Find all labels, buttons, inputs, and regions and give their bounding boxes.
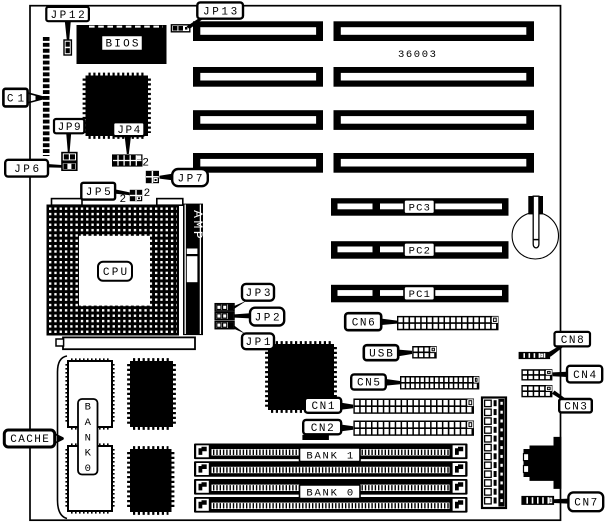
svg-text:CN5: CN5 xyxy=(357,378,382,390)
svg-text:JP6: JP6 xyxy=(14,164,42,176)
svg-text:CN6: CN6 xyxy=(352,317,377,329)
svg-text:CN8: CN8 xyxy=(561,335,586,347)
svg-text:2: 2 xyxy=(120,194,127,206)
svg-text:2: 2 xyxy=(142,158,149,170)
svg-text:BANK 1: BANK 1 xyxy=(306,450,355,462)
svg-text:JP4: JP4 xyxy=(117,125,142,137)
svg-text:K: K xyxy=(85,448,92,460)
svg-text:CACHE: CACHE xyxy=(10,434,50,446)
svg-text:CN7: CN7 xyxy=(574,498,599,510)
svg-text:AMP: AMP xyxy=(190,210,205,241)
svg-text:36003: 36003 xyxy=(398,49,438,61)
svg-text:JP9: JP9 xyxy=(58,122,83,134)
svg-text:PC3: PC3 xyxy=(409,202,432,214)
svg-text:USB: USB xyxy=(369,348,395,360)
svg-text:JP5: JP5 xyxy=(86,187,114,199)
svg-text:C1: C1 xyxy=(7,93,28,105)
svg-text:JP7: JP7 xyxy=(177,173,205,185)
svg-text:JP12: JP12 xyxy=(50,10,87,22)
svg-text:0: 0 xyxy=(85,463,91,475)
svg-text:N: N xyxy=(85,432,91,444)
svg-text:JP2: JP2 xyxy=(255,312,283,324)
svg-text:A: A xyxy=(85,417,92,429)
svg-text:JP3: JP3 xyxy=(245,288,273,300)
svg-text:JP13: JP13 xyxy=(203,6,240,18)
svg-text:B: B xyxy=(85,402,91,414)
svg-text:BIOS: BIOS xyxy=(105,39,140,51)
svg-text:PC2: PC2 xyxy=(409,245,432,257)
svg-text:PC1: PC1 xyxy=(409,289,432,301)
svg-text:CN4: CN4 xyxy=(573,370,598,382)
svg-text:JP1: JP1 xyxy=(245,337,273,349)
svg-text:CN2: CN2 xyxy=(311,423,336,435)
svg-text:BANK 0: BANK 0 xyxy=(306,487,355,499)
svg-text:2: 2 xyxy=(144,188,151,200)
svg-text:CPU: CPU xyxy=(103,267,129,279)
svg-text:CN3: CN3 xyxy=(564,401,588,413)
svg-text:CN1: CN1 xyxy=(311,401,336,413)
